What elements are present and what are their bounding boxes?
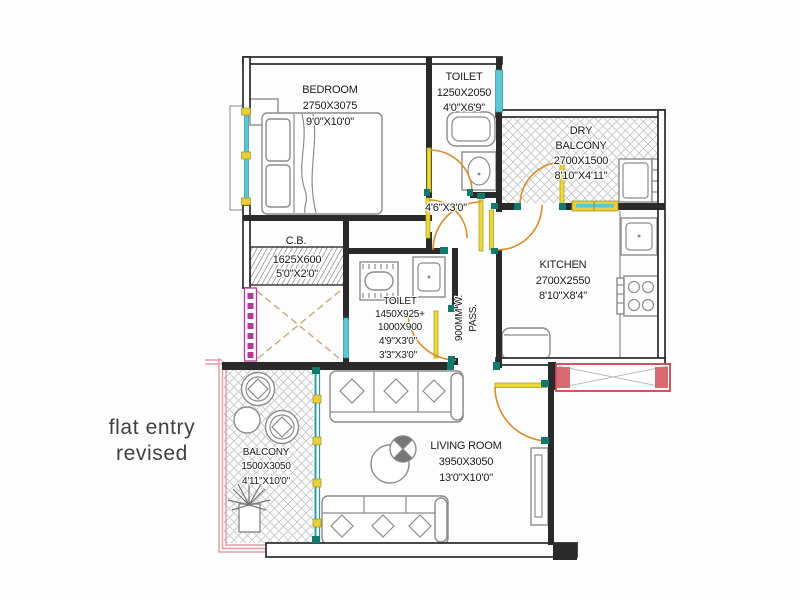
cupboard-label: C.B. 1625X600 5'0"X2'0" — [273, 235, 322, 280]
room-dim-ft: 9'0"X10'0" — [306, 116, 354, 128]
washing-machine — [619, 159, 659, 202]
floor-plan: BEDROOM 2750X3075 9'0"X10'0" TOILET 1250… — [0, 0, 800, 600]
toilet1-label: TOILET 1250X2050 4'0"X6'9" — [437, 71, 492, 114]
room-dim-ft: 8'10"X4'11" — [554, 170, 607, 182]
kitchen-label: KITCHEN 2700X2550 8'10"X8'4" — [536, 259, 591, 302]
toilet2-vent-window — [344, 318, 349, 358]
floor-plan-drawing: BEDROOM 2750X3075 9'0"X10'0" TOILET 1250… — [0, 0, 800, 600]
room-dim-ft: 4'0"X6'9" — [443, 102, 485, 114]
room-dim-mm: 1500X3050 — [241, 461, 291, 472]
round-chair — [266, 411, 299, 444]
room-dim-ft: 4'9"X3'0" — [379, 336, 418, 347]
room-dim-mm: 1450X925+ — [375, 309, 425, 320]
revision-note: flat entry revised — [109, 416, 196, 465]
room-dim-mm: 1000X900 — [378, 322, 423, 333]
lobby-dim-label: 4'6"X3'0" — [425, 202, 467, 214]
room-dim-ft: 13'0"X10'0" — [439, 472, 493, 484]
kitchen-counter — [502, 328, 550, 360]
entry-grill-window — [556, 364, 670, 391]
bedroom-label: BEDROOM 2750X3075 9'0"X10'0" — [302, 84, 357, 128]
room-dim-mm: 2700X1500 — [554, 155, 609, 167]
toilet1-fixtures — [447, 112, 496, 190]
room-name: TOILET — [383, 296, 417, 307]
room-name: DRY — [570, 125, 593, 137]
toilet-vent-window — [496, 70, 503, 112]
living-room-label: LIVING ROOM 3950X3050 13'0"X10'0" — [430, 440, 501, 484]
toilet2-fixtures — [360, 257, 445, 300]
stove-knob-strip — [617, 278, 624, 314]
passage-mouth-jamb — [447, 362, 454, 370]
passage-width-label: 900MM W. — [454, 295, 465, 341]
room-name: TOILET — [445, 71, 483, 83]
room-name: BALCONY — [243, 447, 290, 458]
room-name: BEDROOM — [302, 84, 357, 96]
bedroom-window — [242, 108, 251, 205]
duct-shaft — [257, 291, 340, 359]
living-room-furniture — [322, 371, 548, 544]
stove — [624, 276, 658, 316]
room-dim-mm: 2750X3075 — [303, 100, 358, 112]
sofa-bottom — [322, 496, 448, 544]
shower-tub — [365, 272, 393, 290]
room-dim-ft: 8'10"X8'4" — [539, 290, 587, 302]
passage-word-label: PASS. — [468, 304, 479, 332]
room-name: LIVING ROOM — [430, 440, 501, 452]
balcony-sliding-door — [312, 367, 321, 543]
pillow — [266, 119, 290, 161]
tv-unit — [531, 448, 548, 525]
room-dim-ft: 3'3"X3'0" — [379, 350, 418, 361]
louver-vent — [245, 288, 257, 361]
room-dim-ft: 4'11"X10'0" — [242, 476, 291, 487]
sofa-top — [330, 371, 463, 422]
armrest — [451, 373, 463, 420]
room-name: BALCONY — [555, 140, 607, 152]
room-dim-mm: 1625X600 — [273, 254, 322, 266]
armrest — [435, 498, 447, 542]
revision-note-line2: revised — [116, 442, 188, 465]
round-chair — [242, 373, 275, 406]
patio-table — [234, 407, 260, 433]
main-entry-door — [495, 380, 549, 444]
kitchen-window — [572, 201, 618, 211]
room-dim-ft: 5'0"X2'0" — [276, 268, 318, 280]
room-dim-mm: 3950X3050 — [439, 456, 494, 468]
room-dim-mm: 1250X2050 — [437, 87, 492, 99]
passage-mouth-jamb — [493, 362, 500, 370]
room-dim-mm: 2700X2550 — [536, 275, 591, 287]
passage-label: 900MM W. PASS. — [454, 295, 479, 341]
toilet2-label: TOILET 1450X925+ 1000X900 4'9"X3'0" 3'3"… — [375, 296, 425, 361]
revision-note-line1: flat entry — [109, 416, 196, 439]
room-name: KITCHEN — [540, 259, 587, 271]
balcony-label: BALCONY 1500X3050 4'11"X10'0" — [241, 447, 291, 487]
room-name: C.B. — [286, 235, 307, 247]
pillow — [266, 165, 290, 207]
table-decor — [390, 436, 416, 462]
